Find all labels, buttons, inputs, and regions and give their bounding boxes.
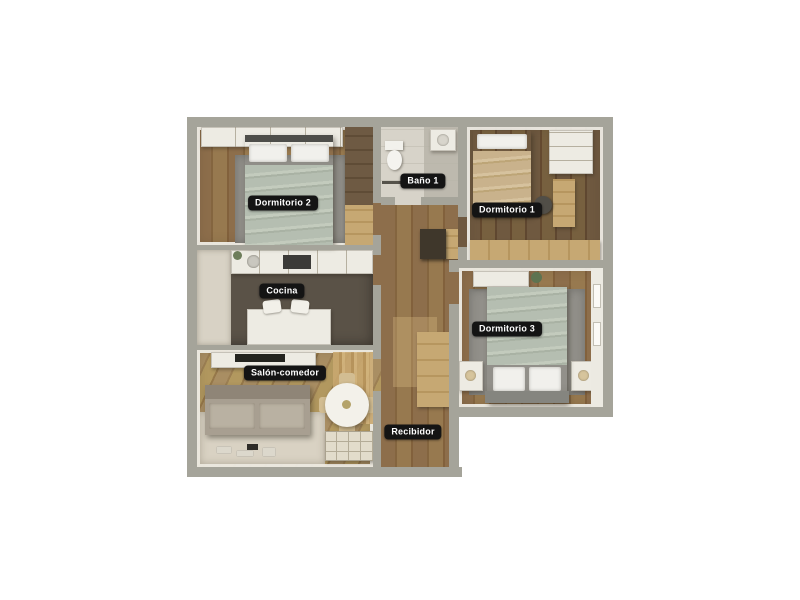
door-bano [395, 197, 421, 205]
floor-papers [263, 448, 275, 456]
wall-corridor-left [373, 127, 381, 467]
hall-wardrobe [417, 332, 449, 407]
kitchen-chair [290, 299, 309, 314]
wall-dormitorio-3-bottom [449, 407, 613, 417]
window [593, 284, 601, 308]
nightstand-lamp [465, 370, 476, 381]
wall-top [187, 117, 613, 127]
dormitorio-2-dresser [345, 205, 373, 245]
sofa-cushion [209, 403, 255, 429]
hall-console-wood [446, 229, 458, 259]
cocina-light-floor [197, 250, 231, 345]
nightstand-lamp [578, 370, 589, 381]
sofa-backrest [205, 385, 310, 399]
sofa-cushion [259, 403, 305, 429]
door-cocina [373, 255, 381, 285]
room-label-dormitorio-1: Dormitorio 1 [472, 203, 542, 218]
kitchen-sink [247, 255, 260, 268]
wall-left [187, 117, 197, 477]
dormitorio-3-double-bed [487, 287, 567, 403]
dormitorio-3-plant [531, 272, 542, 283]
room-label-salon-comedor: Salón-comedor [244, 366, 326, 381]
bed-pillow [291, 144, 329, 162]
floor-plan: Dormitorio 2 Baño 1 Dormitorio 1 Cocina … [187, 117, 613, 477]
door-dormitorio-1 [458, 217, 467, 247]
toilet-tank [385, 141, 403, 150]
bed-pillow [529, 367, 561, 391]
sink-basin [437, 134, 449, 146]
bed-pillow [249, 144, 287, 162]
dormitorio-1-sideboard [470, 240, 600, 260]
tv [235, 354, 285, 362]
wall-cocina-salon [197, 345, 381, 350]
floor-papers [217, 447, 231, 453]
sofa [205, 385, 310, 435]
room-label-dormitorio-3: Dormitorio 3 [472, 322, 542, 337]
kitchen-chair [262, 299, 282, 314]
dormitorio-2-double-bed [245, 135, 333, 245]
door-dormitorio-3 [449, 272, 459, 304]
round-dining-table [325, 383, 369, 427]
room-label-cocina: Cocina [259, 284, 304, 299]
bed-pillow [477, 134, 527, 149]
bathroom-vanity [430, 129, 456, 151]
toilet [387, 150, 402, 170]
kitchen-plant [233, 251, 242, 260]
dormitorio-2-wardrobe [345, 125, 373, 205]
door-dormitorio-2 [373, 203, 381, 235]
floor-plan-canvas: Dormitorio 2 Baño 1 Dormitorio 1 Cocina … [0, 0, 800, 600]
room-label-bano-1: Baño 1 [400, 174, 445, 189]
window [593, 322, 601, 346]
bed-pillow [493, 367, 525, 391]
bed-headboard [485, 391, 569, 403]
dormitorio-1-desk-cabinet [553, 179, 575, 227]
kitchen-stove [283, 255, 311, 269]
table-centerpiece [342, 400, 351, 409]
bed-headboard [245, 135, 333, 142]
room-label-dormitorio-2: Dormitorio 2 [248, 196, 318, 211]
wall-notch [449, 407, 459, 477]
cubby-shelf [325, 431, 375, 461]
floor-papers [237, 451, 253, 456]
kitchen-table [247, 309, 331, 345]
wall-bottom [187, 467, 462, 477]
floor-tablet [247, 444, 258, 450]
wall-dormitorio1-dormitorio3 [449, 260, 613, 268]
hall-console [420, 229, 446, 259]
dormitorio-3-desk [473, 271, 529, 287]
room-label-recibidor: Recibidor [384, 425, 441, 440]
dormitorio-1-wardrobe [549, 130, 593, 174]
wall-dormitorio2-cocina [197, 245, 381, 250]
dormitorio-3-window-wall [591, 268, 603, 407]
door-salon [373, 359, 381, 391]
